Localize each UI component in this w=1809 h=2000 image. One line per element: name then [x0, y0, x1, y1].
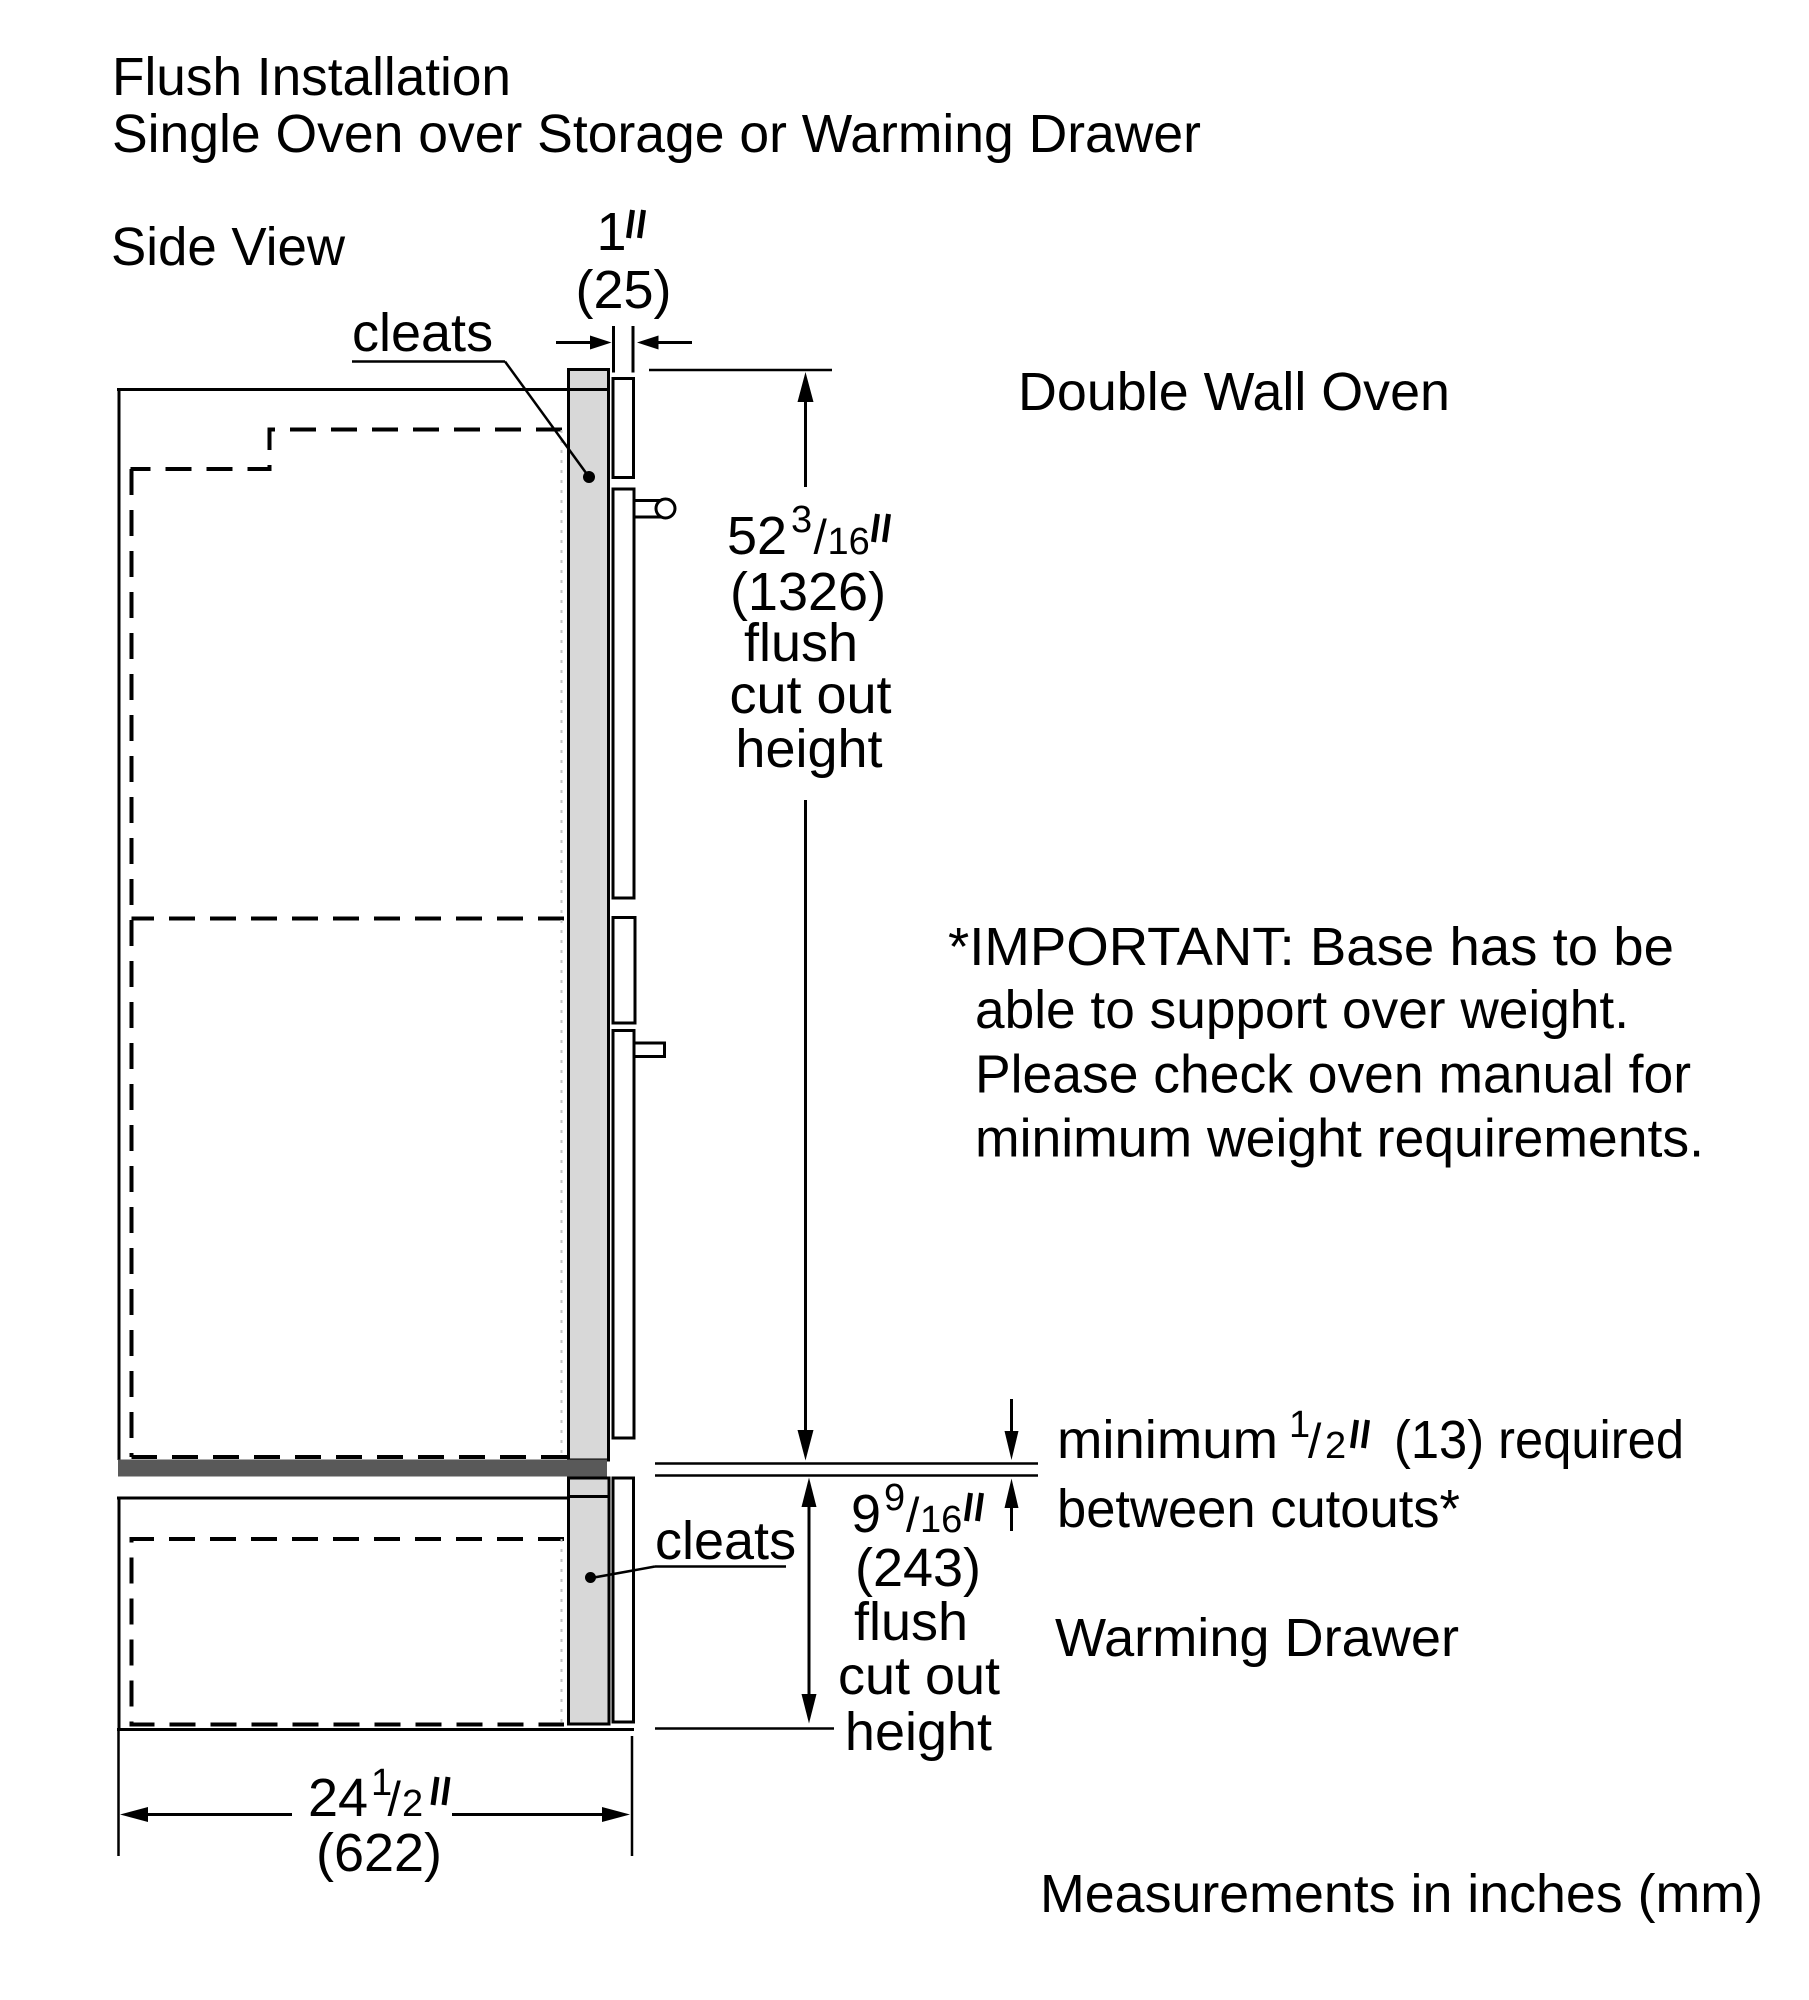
svg-text:16: 16: [828, 521, 870, 563]
svg-text:(243): (243): [855, 1538, 981, 1598]
svg-text:height: height: [845, 1702, 992, 1762]
svg-text:cleats: cleats: [352, 303, 493, 363]
svg-text:(13) required: (13) required: [1394, 1410, 1684, 1470]
svg-text:Side View: Side View: [111, 217, 346, 277]
svg-text:/: /: [814, 512, 828, 565]
svg-text:Double Wall Oven: Double Wall Oven: [1018, 362, 1450, 422]
svg-text:/: /: [388, 1774, 402, 1827]
svg-text:2: 2: [1325, 1425, 1346, 1467]
svg-text:2: 2: [402, 1783, 423, 1825]
svg-text:(622): (622): [316, 1823, 442, 1883]
svg-text:minimum: minimum: [1057, 1410, 1278, 1470]
svg-text:*IMPORTANT: Base has to be: *IMPORTANT: Base has to be: [948, 917, 1674, 977]
svg-text:cut out: cut out: [838, 1646, 1000, 1706]
svg-text:Measurements in inches (mm): Measurements in inches (mm): [1040, 1864, 1763, 1924]
svg-text:/: /: [1308, 1416, 1322, 1469]
svg-text:1: 1: [1289, 1404, 1310, 1446]
svg-text:52: 52: [727, 506, 787, 566]
svg-text:Warming Drawer: Warming Drawer: [1055, 1608, 1459, 1668]
svg-text:minimum weight requirements.: minimum weight requirements.: [975, 1109, 1704, 1169]
svg-text:flush: flush: [744, 613, 858, 673]
svg-text:cut out: cut out: [729, 665, 891, 725]
svg-text:9: 9: [884, 1477, 905, 1519]
svg-text:1: 1: [596, 202, 626, 262]
svg-text:Please check oven manual for: Please check oven manual for: [975, 1045, 1691, 1105]
svg-text:Flush Installation: Flush Installation: [112, 47, 511, 107]
svg-text:9: 9: [851, 1484, 881, 1544]
svg-text:24: 24: [308, 1768, 368, 1828]
svg-text:16: 16: [920, 1499, 962, 1541]
svg-text:Single Oven over Storage or Wa: Single Oven over Storage or Warming Draw…: [112, 104, 1201, 164]
svg-text:able to support over weight.: able to support over weight.: [975, 980, 1629, 1040]
svg-text:flush: flush: [854, 1592, 968, 1652]
svg-text:between cutouts*: between cutouts*: [1057, 1479, 1460, 1539]
svg-text:height: height: [735, 719, 882, 779]
svg-text:/: /: [906, 1490, 920, 1543]
svg-text:3: 3: [791, 499, 812, 541]
svg-text:(25): (25): [575, 260, 671, 320]
svg-text:cleats: cleats: [655, 1511, 796, 1571]
